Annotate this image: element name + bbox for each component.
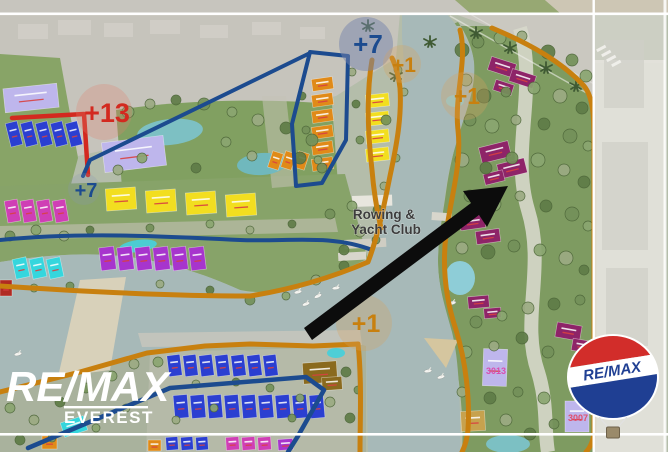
building-roof-mark <box>151 443 159 445</box>
pool <box>445 261 475 295</box>
tree <box>501 87 511 97</box>
tree <box>282 292 290 300</box>
tree <box>485 119 499 133</box>
watermark-brand: RE/MAX <box>6 363 172 410</box>
tree <box>470 316 482 328</box>
tree <box>341 367 351 377</box>
tree <box>325 397 335 407</box>
tree <box>578 176 590 188</box>
building <box>99 246 117 271</box>
building-number-mark <box>3 289 9 290</box>
tree <box>542 346 554 358</box>
tree <box>540 200 552 212</box>
tree <box>575 295 585 305</box>
building-label-3007: 3007 <box>568 413 588 423</box>
building <box>215 354 230 376</box>
tree <box>146 224 154 232</box>
tree <box>480 162 492 174</box>
tree <box>553 89 567 103</box>
building <box>181 437 194 451</box>
building <box>241 394 257 418</box>
building-number-mark <box>46 444 53 445</box>
tree <box>576 102 588 114</box>
tree <box>15 435 25 445</box>
tree <box>171 95 181 105</box>
building <box>153 246 171 271</box>
building <box>225 193 256 217</box>
pool <box>327 348 345 358</box>
building <box>190 394 206 418</box>
faint-building <box>104 23 133 37</box>
building <box>105 187 136 211</box>
tree <box>288 220 296 228</box>
tree <box>538 392 550 404</box>
tree <box>314 156 322 164</box>
building-label-3013: 3013 <box>486 366 506 376</box>
tree <box>559 251 573 265</box>
tree <box>266 384 274 392</box>
tree <box>565 207 579 221</box>
tree <box>484 392 496 404</box>
building <box>263 354 278 376</box>
building <box>275 394 291 418</box>
tree <box>246 226 254 234</box>
tree <box>221 137 231 147</box>
tree <box>566 54 578 66</box>
tree <box>86 226 94 234</box>
zone-label-plus1-top: +1 <box>392 54 416 77</box>
zone-label-plus1-bottom: +1 <box>352 310 381 338</box>
frame-line-top <box>0 13 668 16</box>
faint-building <box>300 27 325 39</box>
tree <box>339 245 349 255</box>
frame-line-edge <box>664 0 667 452</box>
tree <box>356 136 364 144</box>
tree <box>206 220 214 228</box>
masterplan-screenshot: +13 +7 +7 +1 +1 +1 Rowing & Yacht Club 3… <box>0 0 668 452</box>
building <box>258 437 272 451</box>
building <box>468 295 490 309</box>
tree <box>252 114 264 126</box>
building <box>183 354 198 376</box>
poi-label-line2: Yacht Club <box>351 222 421 237</box>
building <box>242 437 256 451</box>
top-road-strip <box>0 0 668 13</box>
faint-building <box>58 20 91 35</box>
tree <box>548 298 560 310</box>
faint-building <box>150 20 180 34</box>
faint-building <box>252 22 281 35</box>
building <box>199 354 214 376</box>
building <box>311 93 333 108</box>
tree <box>210 404 218 412</box>
tree <box>579 265 589 275</box>
building <box>148 440 161 451</box>
building <box>226 437 240 451</box>
faint-building <box>18 24 48 39</box>
tree <box>247 151 257 161</box>
tree <box>296 394 304 402</box>
tree <box>558 164 570 176</box>
building-roof-mark <box>570 410 584 412</box>
tree <box>497 311 507 321</box>
tree <box>288 414 296 422</box>
zone-label-plus7-large: +7 <box>353 29 383 59</box>
faint-building <box>200 25 228 38</box>
tree <box>113 165 123 175</box>
tree <box>306 134 318 146</box>
building <box>166 437 179 451</box>
tree <box>172 416 180 424</box>
tree <box>528 82 540 94</box>
watermark-office: EVEREST <box>64 408 154 427</box>
tree <box>227 107 237 117</box>
frame-line-bottom <box>0 433 668 436</box>
building <box>196 437 209 451</box>
tree <box>137 153 147 163</box>
tree <box>352 100 360 108</box>
tree <box>456 242 468 254</box>
building <box>460 410 485 431</box>
building <box>185 191 216 215</box>
tree <box>522 302 534 314</box>
tree <box>381 115 391 125</box>
tree <box>317 163 327 173</box>
tree <box>302 126 310 134</box>
building <box>311 77 333 92</box>
building <box>224 394 240 418</box>
tree <box>489 341 499 351</box>
tree <box>345 413 355 423</box>
rowing-yacht-club-label: Rowing & Yacht Club <box>351 207 421 237</box>
tree <box>516 332 528 344</box>
building <box>135 246 153 271</box>
tree <box>508 240 520 252</box>
tree <box>506 152 518 164</box>
building <box>117 246 135 271</box>
tree <box>534 244 546 256</box>
tree <box>538 118 550 130</box>
masterplan-map: +13 +7 +7 +1 +1 +1 Rowing & Yacht Club 3… <box>0 0 668 452</box>
building <box>247 354 262 376</box>
building <box>173 394 189 418</box>
tree <box>145 99 155 109</box>
tree <box>206 286 214 294</box>
balloon-basket <box>607 427 620 438</box>
tree <box>531 153 545 167</box>
zone-label-plus1-right: +1 <box>454 83 480 109</box>
tree <box>511 115 521 125</box>
tree <box>29 415 39 425</box>
tree <box>191 163 201 173</box>
tree <box>325 209 335 219</box>
building <box>145 189 176 213</box>
zone-label-plus13: +13 <box>84 98 130 128</box>
tree <box>156 280 164 288</box>
building-number-mark <box>152 446 158 447</box>
tree <box>31 225 41 235</box>
zone-label-plus7-small: +7 <box>75 180 98 202</box>
building <box>231 354 246 376</box>
building <box>311 109 333 124</box>
poi-label-line1: Rowing & <box>353 207 415 222</box>
building <box>258 394 274 418</box>
tree <box>515 191 525 201</box>
tree <box>563 129 577 143</box>
tree <box>549 419 559 429</box>
building <box>189 246 207 271</box>
tree <box>500 414 512 426</box>
building <box>171 246 189 271</box>
tree <box>481 245 495 259</box>
tree <box>513 387 523 397</box>
